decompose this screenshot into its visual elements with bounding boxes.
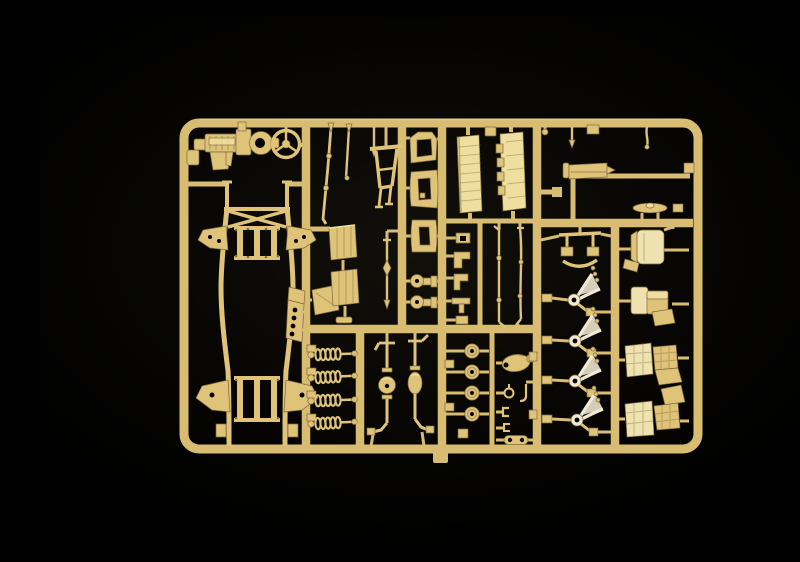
wheel-disc-4 (465, 407, 479, 421)
runner-pad (529, 410, 537, 419)
seat-4 (619, 385, 689, 437)
axle-2 (408, 329, 434, 446)
wheel-disc-2 (465, 365, 479, 379)
linkage-rod-1 (494, 221, 505, 329)
sprue-ejector-tab (433, 452, 448, 463)
wheel-discs-column (445, 344, 489, 438)
open-bracket-b (406, 170, 442, 208)
chassis-wing-upper-left (198, 226, 228, 250)
tie-rod-1 (323, 123, 334, 224)
seat-3 (619, 343, 689, 385)
right-edge-pad (684, 163, 694, 173)
drag-link-part (496, 436, 537, 445)
shock-absorbers (307, 345, 358, 430)
small-clips-column (446, 233, 470, 324)
pointer-rod-part (383, 240, 391, 309)
runner-grid (184, 120, 698, 464)
wheel-disc-1 (465, 344, 479, 358)
runner-pad (529, 352, 537, 361)
suspension-yoke-part (541, 223, 611, 266)
open-bracket-c (406, 220, 442, 252)
sprue-illustration (40, 16, 800, 546)
axle-1 (367, 329, 396, 446)
ribbed-panel-2 (331, 269, 359, 323)
tow-bar-part (563, 163, 615, 179)
wheel-disc-3 (465, 386, 479, 400)
open-bracket-a (406, 132, 442, 163)
ribbed-panel-1 (329, 225, 357, 272)
tow-hooks-group (496, 382, 537, 431)
seat-2 (619, 287, 689, 326)
tie-rod-2 (345, 123, 352, 180)
sprue-photo: Tan injection-molded model kit sprue (pl… (40, 16, 800, 546)
disc-end-mount-2 (406, 296, 442, 309)
engine-part (187, 122, 279, 170)
cargo-panel-1 (457, 123, 482, 221)
linkage-rod-2 (516, 221, 524, 329)
top-frame-pad (587, 125, 599, 134)
steering-knuckles (542, 266, 611, 436)
leaf-spring-blade-part (633, 203, 683, 220)
gate-pad (552, 187, 562, 197)
cargo-panel-2 (496, 123, 526, 221)
seat-1 (619, 223, 689, 272)
disc-end-mount-1 (406, 275, 442, 288)
